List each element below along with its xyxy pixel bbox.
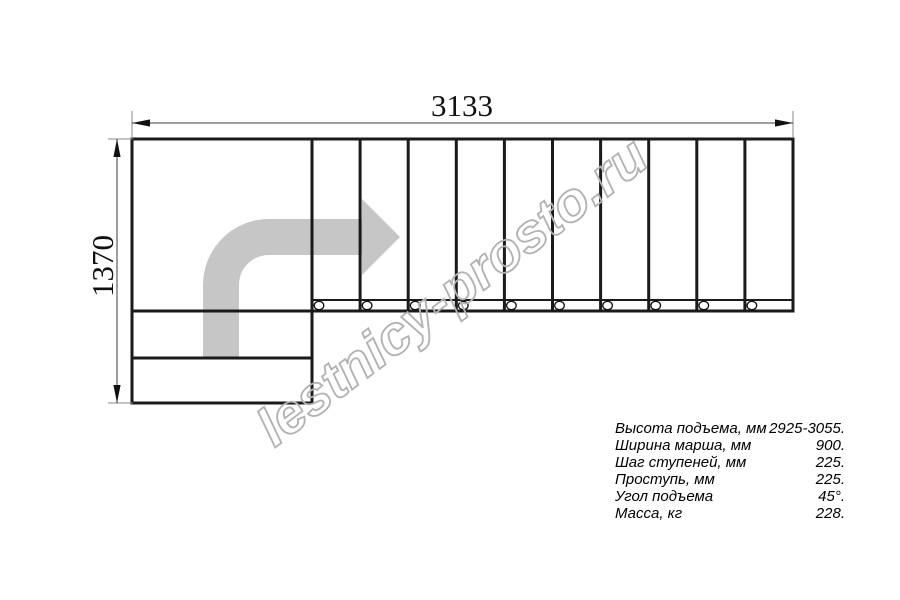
fastener-circle bbox=[699, 301, 709, 309]
spec-row: Шаг ступеней, мм 225. bbox=[615, 454, 845, 471]
spec-label: Проступь, мм bbox=[615, 471, 715, 488]
stair-plan-drawing: 3133 1370 lestnicy-prosto.ru Высота подъ… bbox=[0, 0, 900, 600]
fastener-circle bbox=[603, 301, 613, 309]
fastener-circle bbox=[747, 301, 757, 309]
spec-value: 45°. bbox=[818, 488, 845, 505]
watermark-text: lestnicy-prosto.ru bbox=[246, 126, 659, 458]
spec-value: 225. bbox=[816, 471, 845, 488]
depth-dimension-label: 1370 bbox=[85, 235, 120, 297]
spec-row: Высота подъема, мм 2925-3055. bbox=[615, 420, 845, 437]
fastener-circle bbox=[555, 301, 565, 309]
spec-row: Ширина марша, мм 900. bbox=[615, 437, 845, 454]
spec-label: Шаг ступеней, мм bbox=[615, 454, 746, 471]
spec-value: 900. bbox=[816, 437, 845, 454]
spec-label: Ширина марша, мм bbox=[615, 437, 751, 454]
spec-label: Масса, кг bbox=[615, 505, 682, 522]
spec-label: Угол подъема bbox=[615, 488, 713, 505]
spec-row: Масса, кг 228. bbox=[615, 505, 845, 522]
spec-value: 228. bbox=[816, 505, 845, 522]
fastener-circle bbox=[314, 301, 324, 309]
fastener-circle bbox=[651, 301, 661, 309]
spec-value: 225. bbox=[816, 454, 845, 471]
spec-label: Высота подъема, мм bbox=[615, 420, 767, 437]
dim-arrowhead-up-icon bbox=[113, 139, 120, 157]
specs-table: Высота подъема, мм 2925-3055. Ширина мар… bbox=[615, 420, 845, 522]
depth-dimension: 1370 bbox=[85, 139, 133, 403]
spec-row: Угол подъема 45°. bbox=[615, 488, 845, 505]
width-dimension-label: 3133 bbox=[431, 88, 493, 123]
fastener-circle bbox=[507, 301, 517, 309]
width-dimension: 3133 bbox=[132, 88, 793, 138]
dim-arrowhead-right-icon bbox=[775, 119, 793, 126]
dim-arrowhead-down-icon bbox=[113, 385, 120, 403]
spec-row: Проступь, мм 225. bbox=[615, 471, 845, 488]
direction-arrow-head-icon bbox=[362, 199, 400, 275]
spec-value: 2925-3055. bbox=[769, 420, 845, 437]
dim-arrowhead-left-icon bbox=[132, 119, 150, 126]
fastener-circle bbox=[362, 301, 372, 309]
